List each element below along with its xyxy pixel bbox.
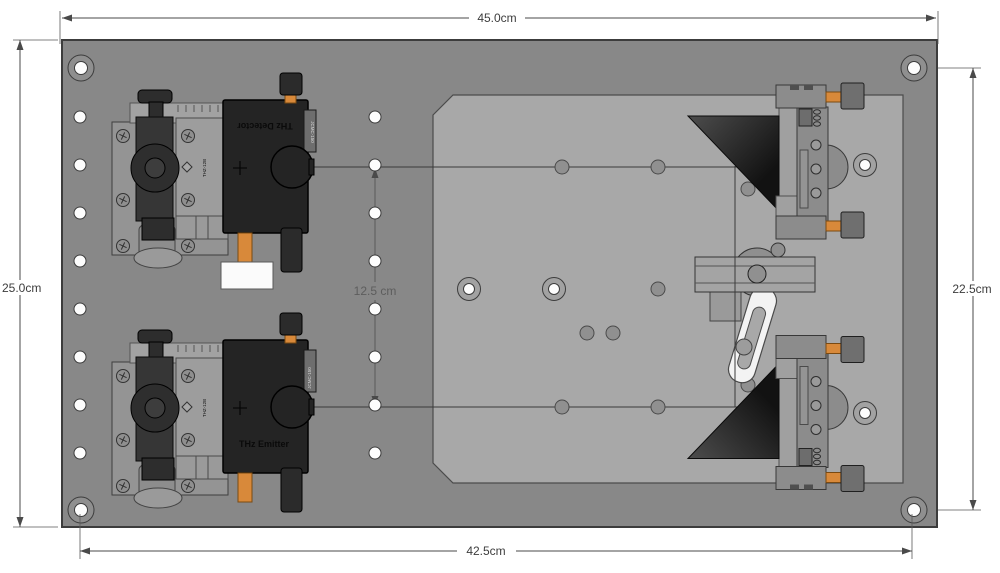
dimension-label-beam-spacing: 12.5 cm xyxy=(354,284,397,298)
dimension-label-left: 25.0cm xyxy=(2,281,41,295)
platform-hole xyxy=(606,326,620,340)
detector-stage-label: THZ-12B xyxy=(202,159,207,177)
platform-hole xyxy=(580,326,594,340)
arrowhead-icon xyxy=(970,500,977,510)
corner-bolt-hole xyxy=(908,62,921,75)
corner-bolt-hole xyxy=(75,62,88,75)
dimension-top-width: 45.0cm xyxy=(60,10,938,44)
dimension-label-bottom: 42.5cm xyxy=(466,544,505,558)
thz-detector-station xyxy=(112,73,316,272)
breadboard-hole xyxy=(74,351,86,363)
detector-id-card xyxy=(221,262,273,289)
dimension-label-top: 45.0cm xyxy=(477,11,516,25)
optical-breadboard-drawing: 12.5 cm THz Detector THZ-12B JCMC-150 TH… xyxy=(0,0,1000,573)
breadboard-hole xyxy=(369,351,381,363)
breadboard-hole xyxy=(74,447,86,459)
breadboard-hole xyxy=(369,111,381,123)
dimension-label-right: 22.5cm xyxy=(952,282,991,296)
breadboard-hole xyxy=(369,447,381,459)
dimension-right-height: 22.5cm xyxy=(938,68,998,510)
arrowhead-icon xyxy=(926,15,936,22)
arrowhead-icon xyxy=(902,548,912,555)
dimension-left-height: 25.0cm xyxy=(0,40,58,527)
platform-hole xyxy=(555,160,569,174)
platform-hole xyxy=(651,400,665,414)
stage-pin xyxy=(771,243,785,257)
arrowhead-icon xyxy=(62,15,72,22)
platform-bolt-hole xyxy=(860,160,871,171)
emitter-stage-label: THZ-12B xyxy=(202,399,207,417)
emitter-model-label: JCMC-150 xyxy=(307,367,312,389)
arrowhead-icon xyxy=(17,40,24,50)
breadboard-hole xyxy=(74,159,86,171)
arrowhead-icon xyxy=(970,68,977,78)
corner-bolt-hole xyxy=(75,504,88,517)
arrowhead-icon xyxy=(17,517,24,527)
breadboard-hole xyxy=(369,159,381,171)
breadboard-hole xyxy=(74,255,86,267)
breadboard-hole xyxy=(74,303,86,315)
clamp-bolt xyxy=(736,339,752,355)
breadboard-hole xyxy=(369,207,381,219)
thz-emitter-station xyxy=(112,313,316,512)
breadboard-hole xyxy=(369,399,381,411)
breadboard-hole xyxy=(369,303,381,315)
breadboard-hole xyxy=(74,207,86,219)
platform-bolt-hole xyxy=(464,284,475,295)
platform-hole xyxy=(651,282,665,296)
center-bolt xyxy=(748,265,766,283)
platform-bolt-hole xyxy=(549,284,560,295)
breadboard-hole xyxy=(74,399,86,411)
corner-bolt-hole xyxy=(908,504,921,517)
arrowhead-icon xyxy=(80,548,90,555)
carriage-block xyxy=(710,291,741,321)
drawing-canvas: 12.5 cm THz Detector THZ-12B JCMC-150 TH… xyxy=(0,0,1000,573)
breadboard-hole xyxy=(369,255,381,267)
platform-hole xyxy=(555,400,569,414)
detector-model-label: JCMC-150 xyxy=(310,121,315,143)
platform-hole xyxy=(651,160,665,174)
emitter-label: THz Emitter xyxy=(239,439,290,449)
breadboard-hole xyxy=(74,111,86,123)
detector-label: THz Detector xyxy=(237,121,293,131)
platform-bolt-hole xyxy=(860,408,871,419)
